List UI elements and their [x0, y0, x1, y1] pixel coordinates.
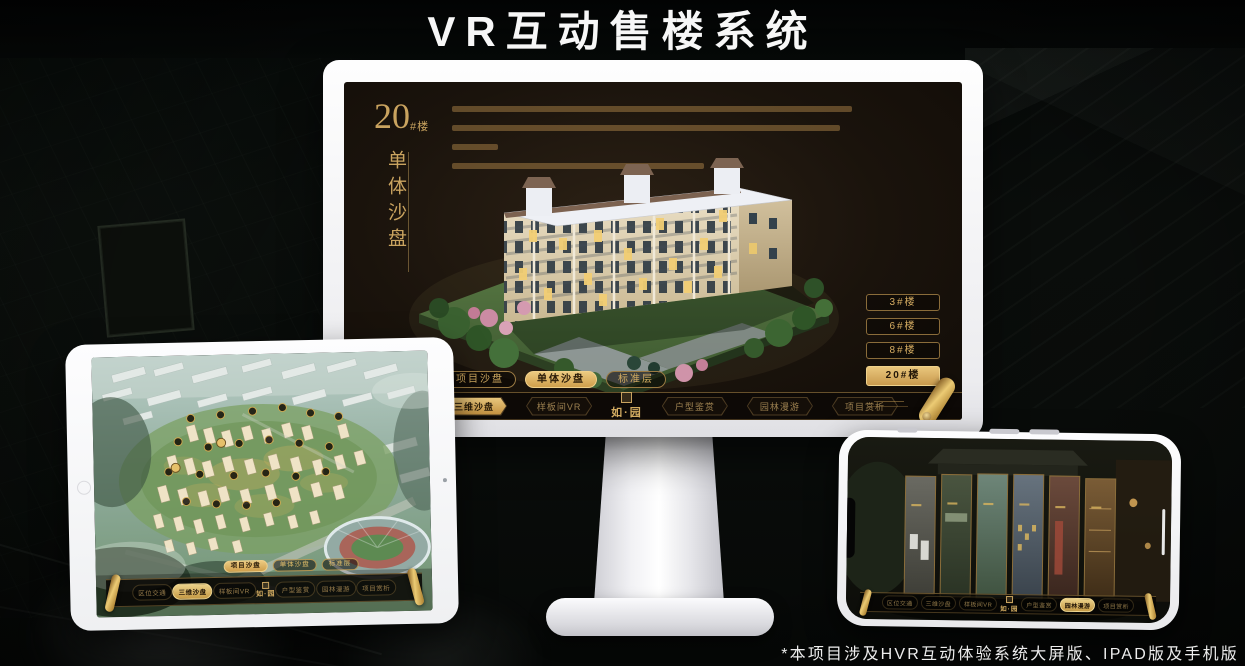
ipad-brand-logo: 如·园 [256, 581, 276, 598]
background-plaque [97, 218, 194, 337]
nav-item-showroom-vr[interactable]: 样板间VR [526, 397, 592, 416]
phone-power-button[interactable] [1029, 429, 1059, 434]
nav-item-floorplan[interactable]: 户型鉴赏 [662, 397, 728, 416]
ipad-nav-showroom-vr[interactable]: 样板间VR [213, 582, 256, 599]
monitor-stand-base [546, 598, 774, 636]
subtab-project-sandtable[interactable]: 项目沙盘 [444, 371, 516, 388]
ipad-subtab-single-sandtable[interactable]: 单体沙盘 [273, 559, 317, 572]
phone-navbar: 区位交通 三维沙盘 样板间VR 如·园 户型鉴赏 园林漫游 项目赏析 [860, 592, 1156, 616]
floor-button-3[interactable]: 3#楼 [866, 294, 940, 311]
page-title: VR互动售楼系统 [0, 0, 1245, 56]
stage: VR互动售楼系统 20#楼 单体沙盘 [0, 0, 1245, 666]
ipad-nav-project-intro[interactable]: 项目赏析 [356, 579, 396, 596]
ipad-camera-icon [443, 478, 447, 482]
phone-nav-showroom-vr[interactable]: 样板间VR [959, 596, 998, 611]
phone-home-indicator[interactable] [1161, 509, 1165, 555]
phone-notch [846, 498, 856, 558]
ipad-nav-floorplan[interactable]: 户型鉴赏 [275, 581, 315, 598]
phone-nav-location-traffic[interactable]: 区位交通 [882, 595, 918, 609]
scroll-handle-left-icon[interactable] [104, 574, 121, 613]
phone-nav-garden-roam[interactable]: 园林漫游 [1060, 598, 1096, 612]
ipad-screen: 项目沙盘 单体沙盘 标准层 区位交通 三维沙盘 样板间VR 如·园 户型鉴赏 园… [91, 351, 432, 618]
phone-nav-project-intro[interactable]: 项目赏析 [1098, 598, 1134, 612]
ipad-nav-location-traffic[interactable]: 区位交通 [132, 584, 172, 601]
floor-button-8[interactable]: 8#楼 [866, 342, 940, 359]
phone: 区位交通 三维沙盘 样板间VR 如·园 户型鉴赏 园林漫游 项目赏析 [837, 430, 1182, 631]
footnote: *本项目涉及HVR互动体验系统大屏版、IPAD版及手机版 [781, 640, 1239, 664]
subtab-single-sandtable[interactable]: 单体沙盘 [525, 371, 597, 388]
nav-item-garden-roam[interactable]: 园林漫游 [747, 397, 813, 416]
monitor-stand-neck [594, 435, 724, 603]
ipad: 项目沙盘 单体沙盘 标准层 区位交通 三维沙盘 样板间VR 如·园 户型鉴赏 园… [65, 337, 459, 631]
ipad-subtab-project-sandtable[interactable]: 项目沙盘 [224, 560, 268, 573]
ipad-subtab-standard-floor[interactable]: 标准层 [322, 558, 359, 571]
phone-mute-switch[interactable] [897, 427, 917, 432]
building-3d-render [384, 118, 864, 398]
floor-button-6[interactable]: 6#楼 [866, 318, 940, 335]
phone-brand-logo: 如·园 [1000, 595, 1018, 612]
phone-volume-button[interactable] [989, 429, 1019, 434]
floor-button-20[interactable]: 20#楼 [866, 366, 940, 386]
brand-seal-icon [621, 392, 632, 403]
floor-button-group: 3#楼 6#楼 8#楼 20#楼 [866, 294, 940, 386]
monitor-subtabs: 项目沙盘 单体沙盘 标准层 [444, 371, 666, 388]
brand-logo: 如·园 [611, 392, 643, 420]
ipad-nav-3d-sandtable[interactable]: 三维沙盘 [172, 583, 212, 600]
phone-nav-floorplan[interactable]: 户型鉴赏 [1021, 597, 1057, 611]
ipad-home-button[interactable] [77, 481, 91, 495]
phone-nav-3d-sandtable[interactable]: 三维沙盘 [920, 596, 956, 610]
subtab-standard-floor[interactable]: 标准层 [606, 371, 666, 388]
phone-screen: 区位交通 三维沙盘 样板间VR 如·园 户型鉴赏 园林漫游 项目赏析 [846, 437, 1173, 624]
background-building-render [965, 48, 1245, 408]
ipad-nav-garden-roam[interactable]: 园林漫游 [316, 580, 356, 597]
